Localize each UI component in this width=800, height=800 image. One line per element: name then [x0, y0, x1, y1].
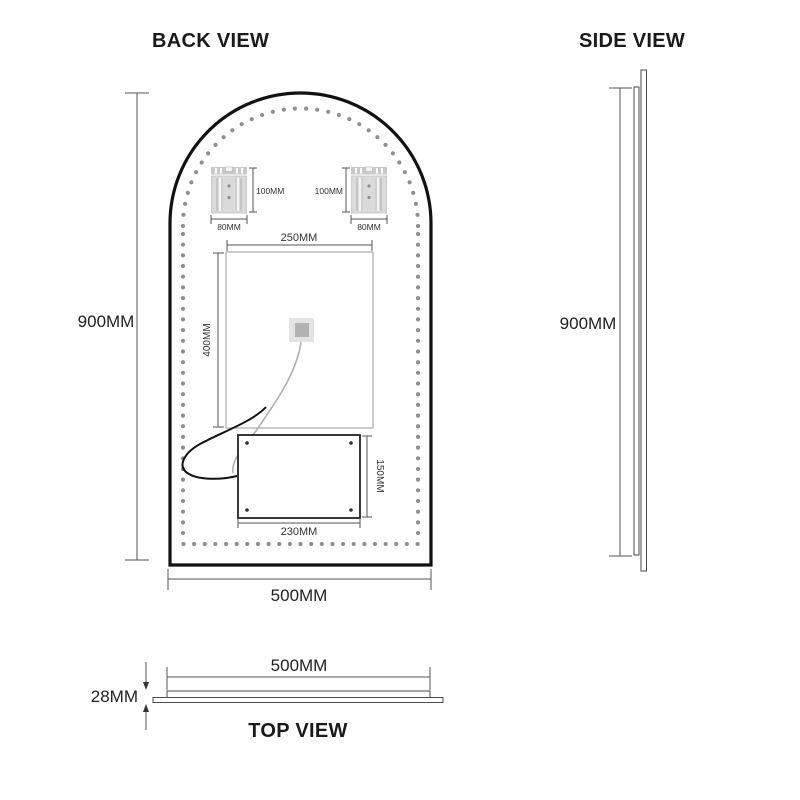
- led-dot: [416, 243, 420, 247]
- led-dot: [230, 128, 234, 132]
- led-dot: [416, 253, 420, 257]
- led-dot: [181, 349, 185, 353]
- led-dot: [240, 122, 244, 126]
- led-dot: [288, 542, 292, 546]
- junction-box-screw-tl: [245, 441, 249, 445]
- led-dot: [181, 392, 185, 396]
- led-dot: [416, 232, 420, 236]
- thickness-arrow-up-icon: [143, 704, 149, 712]
- led-dot: [415, 213, 419, 217]
- thickness-arrow-down-icon: [143, 682, 149, 690]
- led-dot: [181, 264, 185, 268]
- junction-box-screw-tr: [349, 441, 353, 445]
- led-dot: [213, 542, 217, 546]
- side-view-glass: [641, 70, 647, 571]
- led-dot: [181, 328, 185, 332]
- led-dot: [181, 499, 185, 503]
- led-dot: [411, 191, 415, 195]
- led-dot: [416, 403, 420, 407]
- led-dot: [213, 143, 217, 147]
- bracket-right-graphic: [351, 167, 387, 213]
- led-dot: [416, 285, 420, 289]
- led-dot: [403, 170, 407, 174]
- led-dot: [367, 128, 371, 132]
- side-view-title: SIDE VIEW: [579, 30, 685, 52]
- led-dot: [320, 542, 324, 546]
- junction-box-height-label: 150MM: [374, 459, 385, 492]
- led-dot: [181, 307, 185, 311]
- led-dot: [181, 243, 185, 247]
- junction-box-outline: [238, 435, 360, 518]
- led-dot: [416, 414, 420, 418]
- led-dot: [416, 467, 420, 471]
- led-dot: [414, 202, 418, 206]
- led-dot: [416, 446, 420, 450]
- led-dot: [416, 349, 420, 353]
- led-dot: [181, 478, 185, 482]
- technical-drawing: BACK VIEW 900MM 500MM: [0, 0, 800, 800]
- led-dot: [391, 151, 395, 155]
- led-dot: [337, 113, 341, 117]
- led-dot: [181, 520, 185, 524]
- led-dot: [304, 107, 308, 111]
- led-dot: [341, 542, 345, 546]
- led-dot: [394, 542, 398, 546]
- led-dot: [181, 360, 185, 364]
- led-panel: 250MM 400MM: [202, 232, 373, 428]
- top-thickness-label: 28MM: [91, 687, 138, 706]
- led-dot: [315, 108, 319, 112]
- led-dot: [416, 275, 420, 279]
- width-dimension: 500MM: [168, 569, 431, 605]
- led-dot: [293, 107, 297, 111]
- top-view-title: TOP VIEW: [248, 720, 347, 742]
- junction-box-width-label: 230MM: [281, 526, 318, 538]
- led-dot: [326, 110, 330, 114]
- bracket-right-width-label: 80MM: [357, 222, 381, 232]
- led-dot: [206, 151, 210, 155]
- led-dot: [416, 317, 420, 321]
- panel-width-label: 250MM: [281, 232, 318, 244]
- height-dimension: 900MM: [78, 93, 149, 560]
- led-dot: [416, 264, 420, 268]
- junction-box-screw-bl: [245, 508, 249, 512]
- led-dot: [181, 542, 185, 546]
- led-dot: [183, 202, 187, 206]
- led-dot: [347, 117, 351, 121]
- led-dot: [397, 160, 401, 164]
- led-dot: [256, 542, 260, 546]
- led-dot: [416, 478, 420, 482]
- width-dimension-label: 500MM: [271, 586, 328, 605]
- junction-box-screw-br: [349, 508, 353, 512]
- led-dot: [416, 296, 420, 300]
- led-dot: [416, 499, 420, 503]
- led-dot: [416, 456, 420, 460]
- led-dot: [200, 160, 204, 164]
- led-dot: [181, 446, 185, 450]
- led-dot: [181, 285, 185, 289]
- led-dot: [416, 510, 420, 514]
- led-dot: [298, 542, 302, 546]
- side-height-label: 900MM: [560, 314, 617, 333]
- led-dot: [222, 135, 226, 139]
- led-dot: [383, 143, 387, 147]
- led-dot: [181, 488, 185, 492]
- led-dot: [181, 403, 185, 407]
- led-dot: [277, 542, 281, 546]
- led-dot: [181, 253, 185, 257]
- led-dot: [181, 371, 185, 375]
- led-dot: [416, 392, 420, 396]
- led-dot: [416, 435, 420, 439]
- led-dot: [384, 542, 388, 546]
- top-view-back-panel: [167, 691, 430, 698]
- led-dot: [260, 113, 264, 117]
- bracket-left-graphic: [211, 167, 247, 213]
- led-dot: [416, 371, 420, 375]
- side-view: SIDE VIEW 900MM: [560, 30, 685, 571]
- top-thickness-arrows: [143, 662, 149, 730]
- top-width-label: 500MM: [271, 656, 328, 675]
- side-view-back-panel: [634, 87, 639, 555]
- back-view: BACK VIEW 900MM 500MM: [78, 30, 431, 605]
- led-dot: [194, 170, 198, 174]
- led-dot: [416, 531, 420, 535]
- led-dot: [181, 213, 185, 217]
- led-dot: [189, 180, 193, 184]
- led-dot: [416, 307, 420, 311]
- led-dot: [181, 424, 185, 428]
- led-dot: [330, 542, 334, 546]
- back-view-title: BACK VIEW: [152, 30, 269, 52]
- led-dot: [352, 542, 356, 546]
- led-dot: [416, 542, 420, 546]
- led-dot: [181, 275, 185, 279]
- led-dot: [186, 191, 190, 195]
- led-dot: [416, 224, 420, 228]
- led-dot: [362, 542, 366, 546]
- led-dot: [416, 339, 420, 343]
- led-dot: [416, 488, 420, 492]
- led-dot: [181, 224, 185, 228]
- led-dot: [405, 542, 409, 546]
- led-dot: [235, 542, 239, 546]
- led-dot: [192, 542, 196, 546]
- led-dot: [375, 135, 379, 139]
- bracket-left-height-label: 100MM: [256, 186, 284, 196]
- touch-sensor-chip: [295, 323, 309, 337]
- led-dot: [181, 510, 185, 514]
- height-dimension-label: 900MM: [78, 312, 135, 331]
- led-dot: [416, 424, 420, 428]
- led-dot: [416, 360, 420, 364]
- led-dot: [416, 328, 420, 332]
- led-dot: [245, 542, 249, 546]
- led-dot: [181, 531, 185, 535]
- top-view-glass: [153, 698, 443, 703]
- top-view: 500MM 28MM TOP VIEW: [91, 656, 443, 742]
- led-dot: [181, 381, 185, 385]
- bracket-right-height-label: 100MM: [315, 186, 343, 196]
- led-dot: [408, 180, 412, 184]
- bracket-left-width-label: 80MM: [217, 222, 241, 232]
- led-dot: [203, 542, 207, 546]
- led-dot: [416, 520, 420, 524]
- led-dot: [181, 414, 185, 418]
- led-dot: [373, 542, 377, 546]
- led-dot: [181, 317, 185, 321]
- led-dot: [181, 232, 185, 236]
- led-dot: [357, 122, 361, 126]
- led-dot: [181, 296, 185, 300]
- led-dot: [416, 381, 420, 385]
- led-dot: [267, 542, 271, 546]
- panel-height-label: 400MM: [202, 323, 213, 356]
- led-dot: [181, 435, 185, 439]
- led-dot: [250, 117, 254, 121]
- led-dot: [271, 110, 275, 114]
- led-dot: [309, 542, 313, 546]
- led-dot: [224, 542, 228, 546]
- led-dot: [282, 108, 286, 112]
- led-dot: [181, 339, 185, 343]
